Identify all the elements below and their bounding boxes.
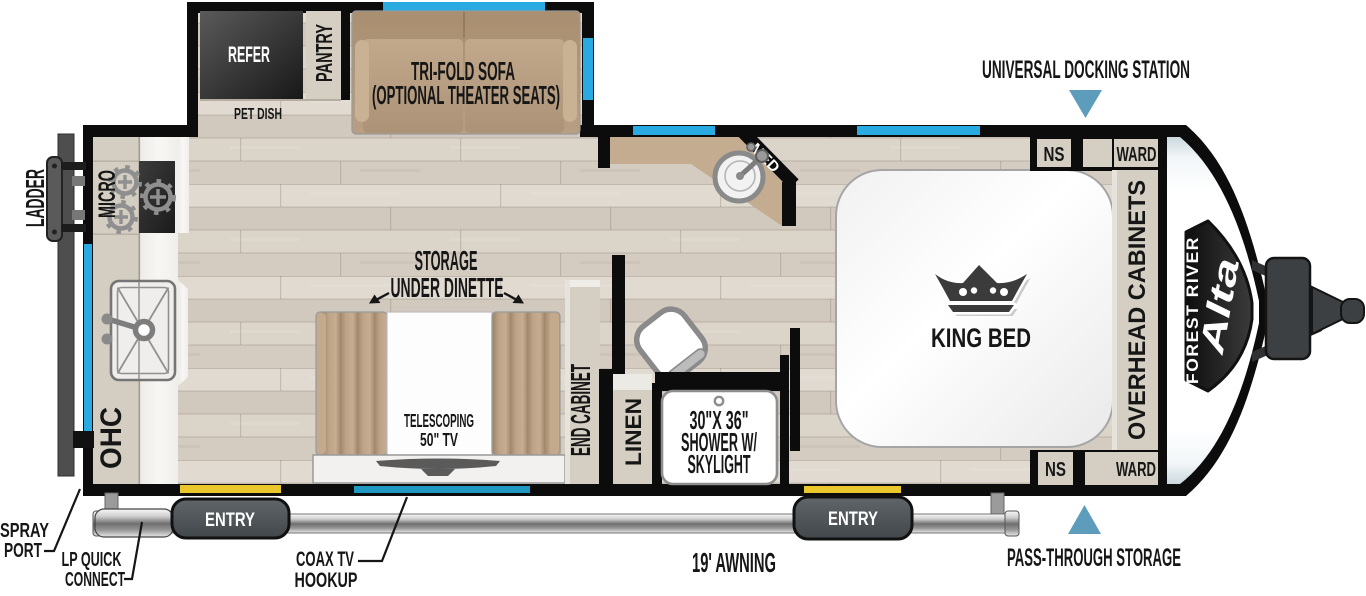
svg-text:TELESCOPING: TELESCOPING [404,411,474,431]
svg-text:LP QUICK: LP QUICK [62,549,122,571]
svg-text:NS: NS [1044,144,1065,166]
svg-text:KING BED: KING BED [931,323,1031,353]
svg-text:PASS-THROUGH STORAGE: PASS-THROUGH STORAGE [1007,544,1181,572]
svg-text:UNDER DINETTE: UNDER DINETTE [391,272,504,303]
svg-text:SPRAY: SPRAY [0,520,49,542]
svg-text:UNIVERSAL DOCKING STATION: UNIVERSAL DOCKING STATION [982,56,1190,84]
svg-text:WARD: WARD [1117,144,1157,166]
svg-text:19' AWNING: 19' AWNING [692,547,776,578]
svg-text:LADDER: LADDER [20,169,50,227]
svg-text:OHC: OHC [95,407,128,469]
svg-text:COAX TV: COAX TV [296,548,354,571]
svg-text:PORT: PORT [4,540,42,562]
svg-text:50" TV: 50" TV [420,430,458,450]
svg-text:LINEN: LINEN [621,398,646,466]
svg-text:ENTRY: ENTRY [205,510,255,531]
svg-text:PANTRY: PANTRY [311,24,337,82]
svg-text:CONNECT: CONNECT [65,569,125,591]
svg-text:MICRO: MICRO [94,170,121,218]
svg-text:PET DISH: PET DISH [234,106,282,123]
svg-text:REFER: REFER [228,42,270,67]
svg-text:(OPTIONAL THEATER SEATS): (OPTIONAL THEATER SEATS) [372,80,560,110]
svg-text:OVERHEAD CABINETS: OVERHEAD CABINETS [1124,180,1151,440]
svg-text:NS: NS [1045,459,1066,481]
svg-text:END CABINET: END CABINET [565,364,596,456]
svg-text:HOOKUP: HOOKUP [295,569,358,592]
svg-text:SKYLIGHT: SKYLIGHT [688,449,751,479]
svg-text:WARD: WARD [1116,459,1156,481]
svg-text:ENTRY: ENTRY [828,509,878,530]
